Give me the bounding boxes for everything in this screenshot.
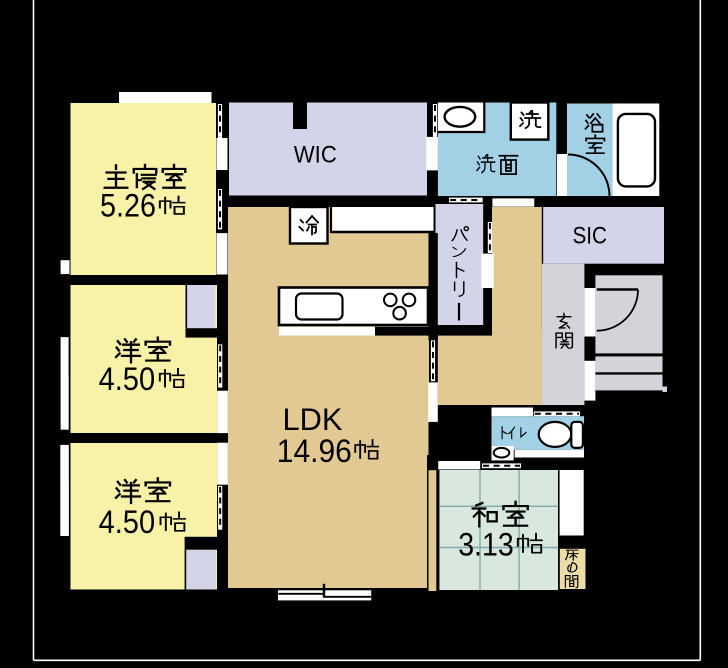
svg-text:SIC: SIC [573,223,608,250]
svg-text:3.13: 3.13 [458,527,514,563]
svg-text:14.96: 14.96 [277,433,352,469]
svg-text:5.26: 5.26 [100,188,156,224]
svg-text:LDK: LDK [283,401,343,437]
svg-text:4.50: 4.50 [99,504,156,540]
svg-text:4.50: 4.50 [99,361,156,397]
svg-text:WIC: WIC [294,142,337,169]
